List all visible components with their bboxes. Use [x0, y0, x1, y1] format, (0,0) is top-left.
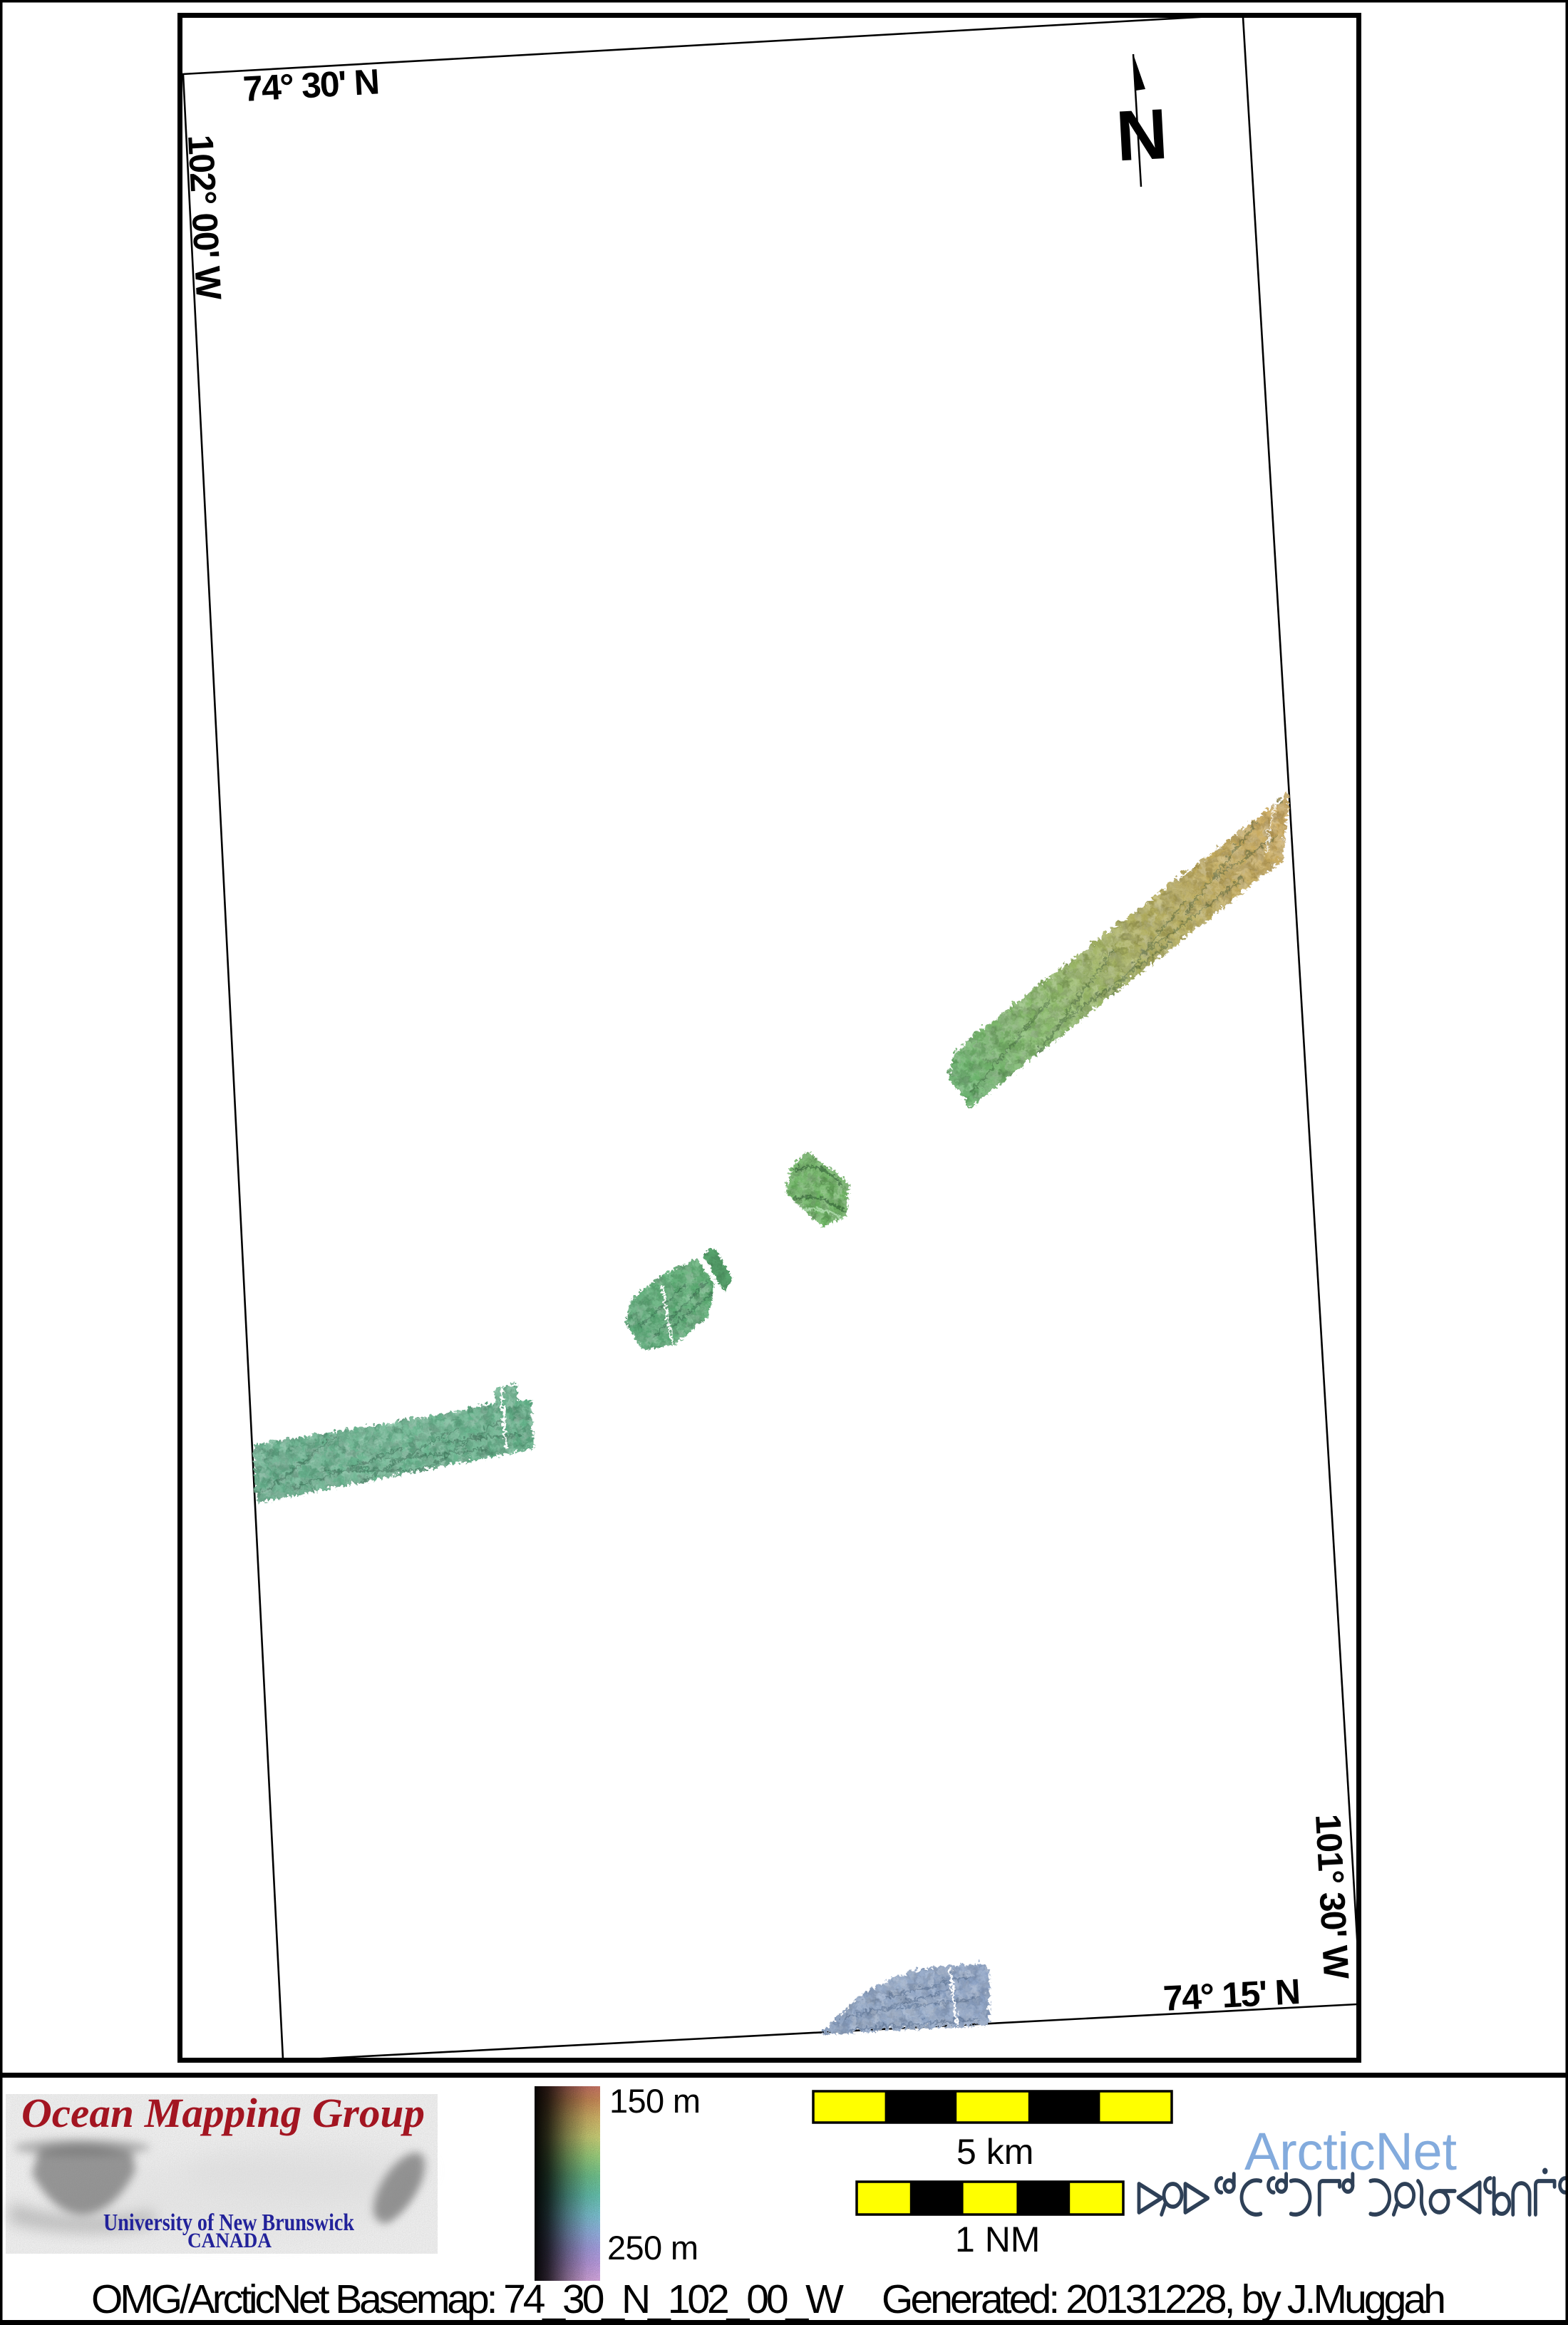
svg-text:1 NM: 1 NM [955, 2220, 1040, 2259]
svg-text:Generated: 20131228, by J.Mugg: Generated: 20131228, by J.Muggah [882, 2277, 1446, 2322]
svg-text:N: N [1114, 94, 1170, 177]
svg-text:OMG/ArcticNet Basemap: 74_30_N: OMG/ArcticNet Basemap: 74_30_N_102_00_W [91, 2277, 844, 2322]
svg-text:5 km: 5 km [956, 2132, 1033, 2172]
svg-text:74° 30' N: 74° 30' N [242, 61, 381, 109]
svg-text:74° 15' N: 74° 15' N [1162, 1971, 1302, 2019]
svg-text:250 m: 250 m [607, 2229, 698, 2267]
svg-text:150 m: 150 m [609, 2082, 701, 2120]
svg-text:CANADA: CANADA [187, 2229, 272, 2252]
svg-text:Ocean Mapping Group: Ocean Mapping Group [21, 2090, 425, 2136]
svg-text:ArcticNet: ArcticNet [1244, 2122, 1457, 2181]
